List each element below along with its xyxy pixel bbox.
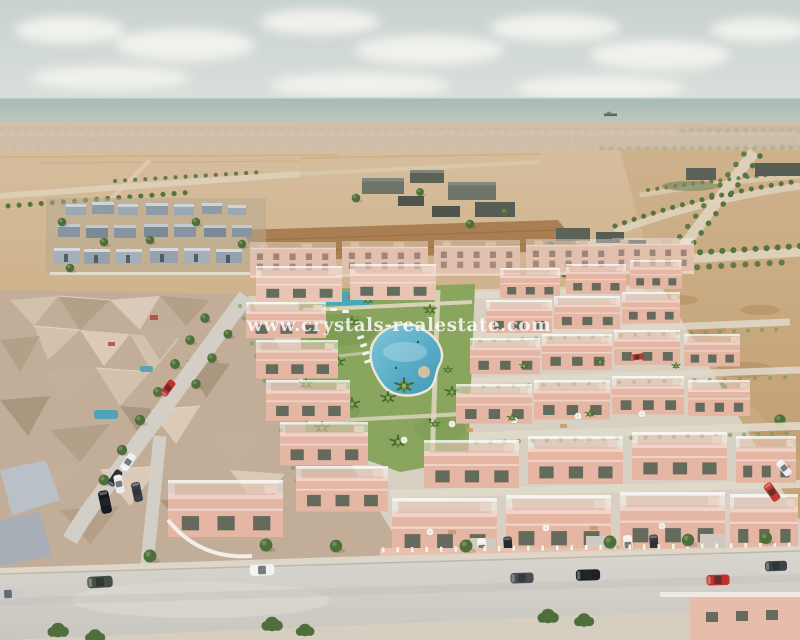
villa-block: [350, 264, 436, 300]
pool-sparkle: [383, 342, 427, 362]
villa-block: [684, 334, 740, 366]
villa-block: [554, 296, 620, 329]
car-white-suv: [249, 564, 274, 576]
villa-block: [534, 380, 610, 420]
car-black-suv: [576, 569, 601, 581]
villa-block: [470, 338, 540, 374]
villa-block: [614, 330, 680, 365]
horizon-line: [0, 97, 800, 99]
villa-block: [612, 376, 684, 414]
villa-block: [296, 466, 388, 512]
villa-block: [566, 264, 626, 294]
pool-island: [418, 366, 430, 378]
townhouse-block: [424, 440, 519, 488]
villa-block: [256, 266, 342, 302]
car-green-suv: [87, 576, 113, 589]
corner-villa: [168, 480, 283, 537]
old-pool-small: [140, 366, 153, 372]
villa-block: [500, 268, 560, 298]
aerial-render-image: www.crystals-realestate.com: [0, 0, 800, 640]
villa-block: [622, 292, 680, 323]
car-gray: [510, 572, 533, 583]
villa-block: [266, 380, 350, 421]
car-dark-right: [765, 561, 787, 572]
villa-block: [542, 334, 612, 370]
car-red-parked: [706, 574, 729, 585]
car-silver-edge: [0, 588, 20, 600]
villa-block: [280, 422, 368, 465]
white-wall: [50, 272, 260, 275]
villa-block: [256, 340, 338, 378]
far-villa-wall: [660, 592, 800, 597]
villa-block: [630, 260, 682, 289]
townhouse-block: [632, 432, 727, 480]
old-pool: [94, 410, 118, 419]
watermark-text: www.crystals-realestate.com: [246, 315, 551, 336]
townhouse-block: [528, 436, 623, 484]
villa-block: [688, 380, 750, 416]
villa-block: [456, 384, 532, 424]
